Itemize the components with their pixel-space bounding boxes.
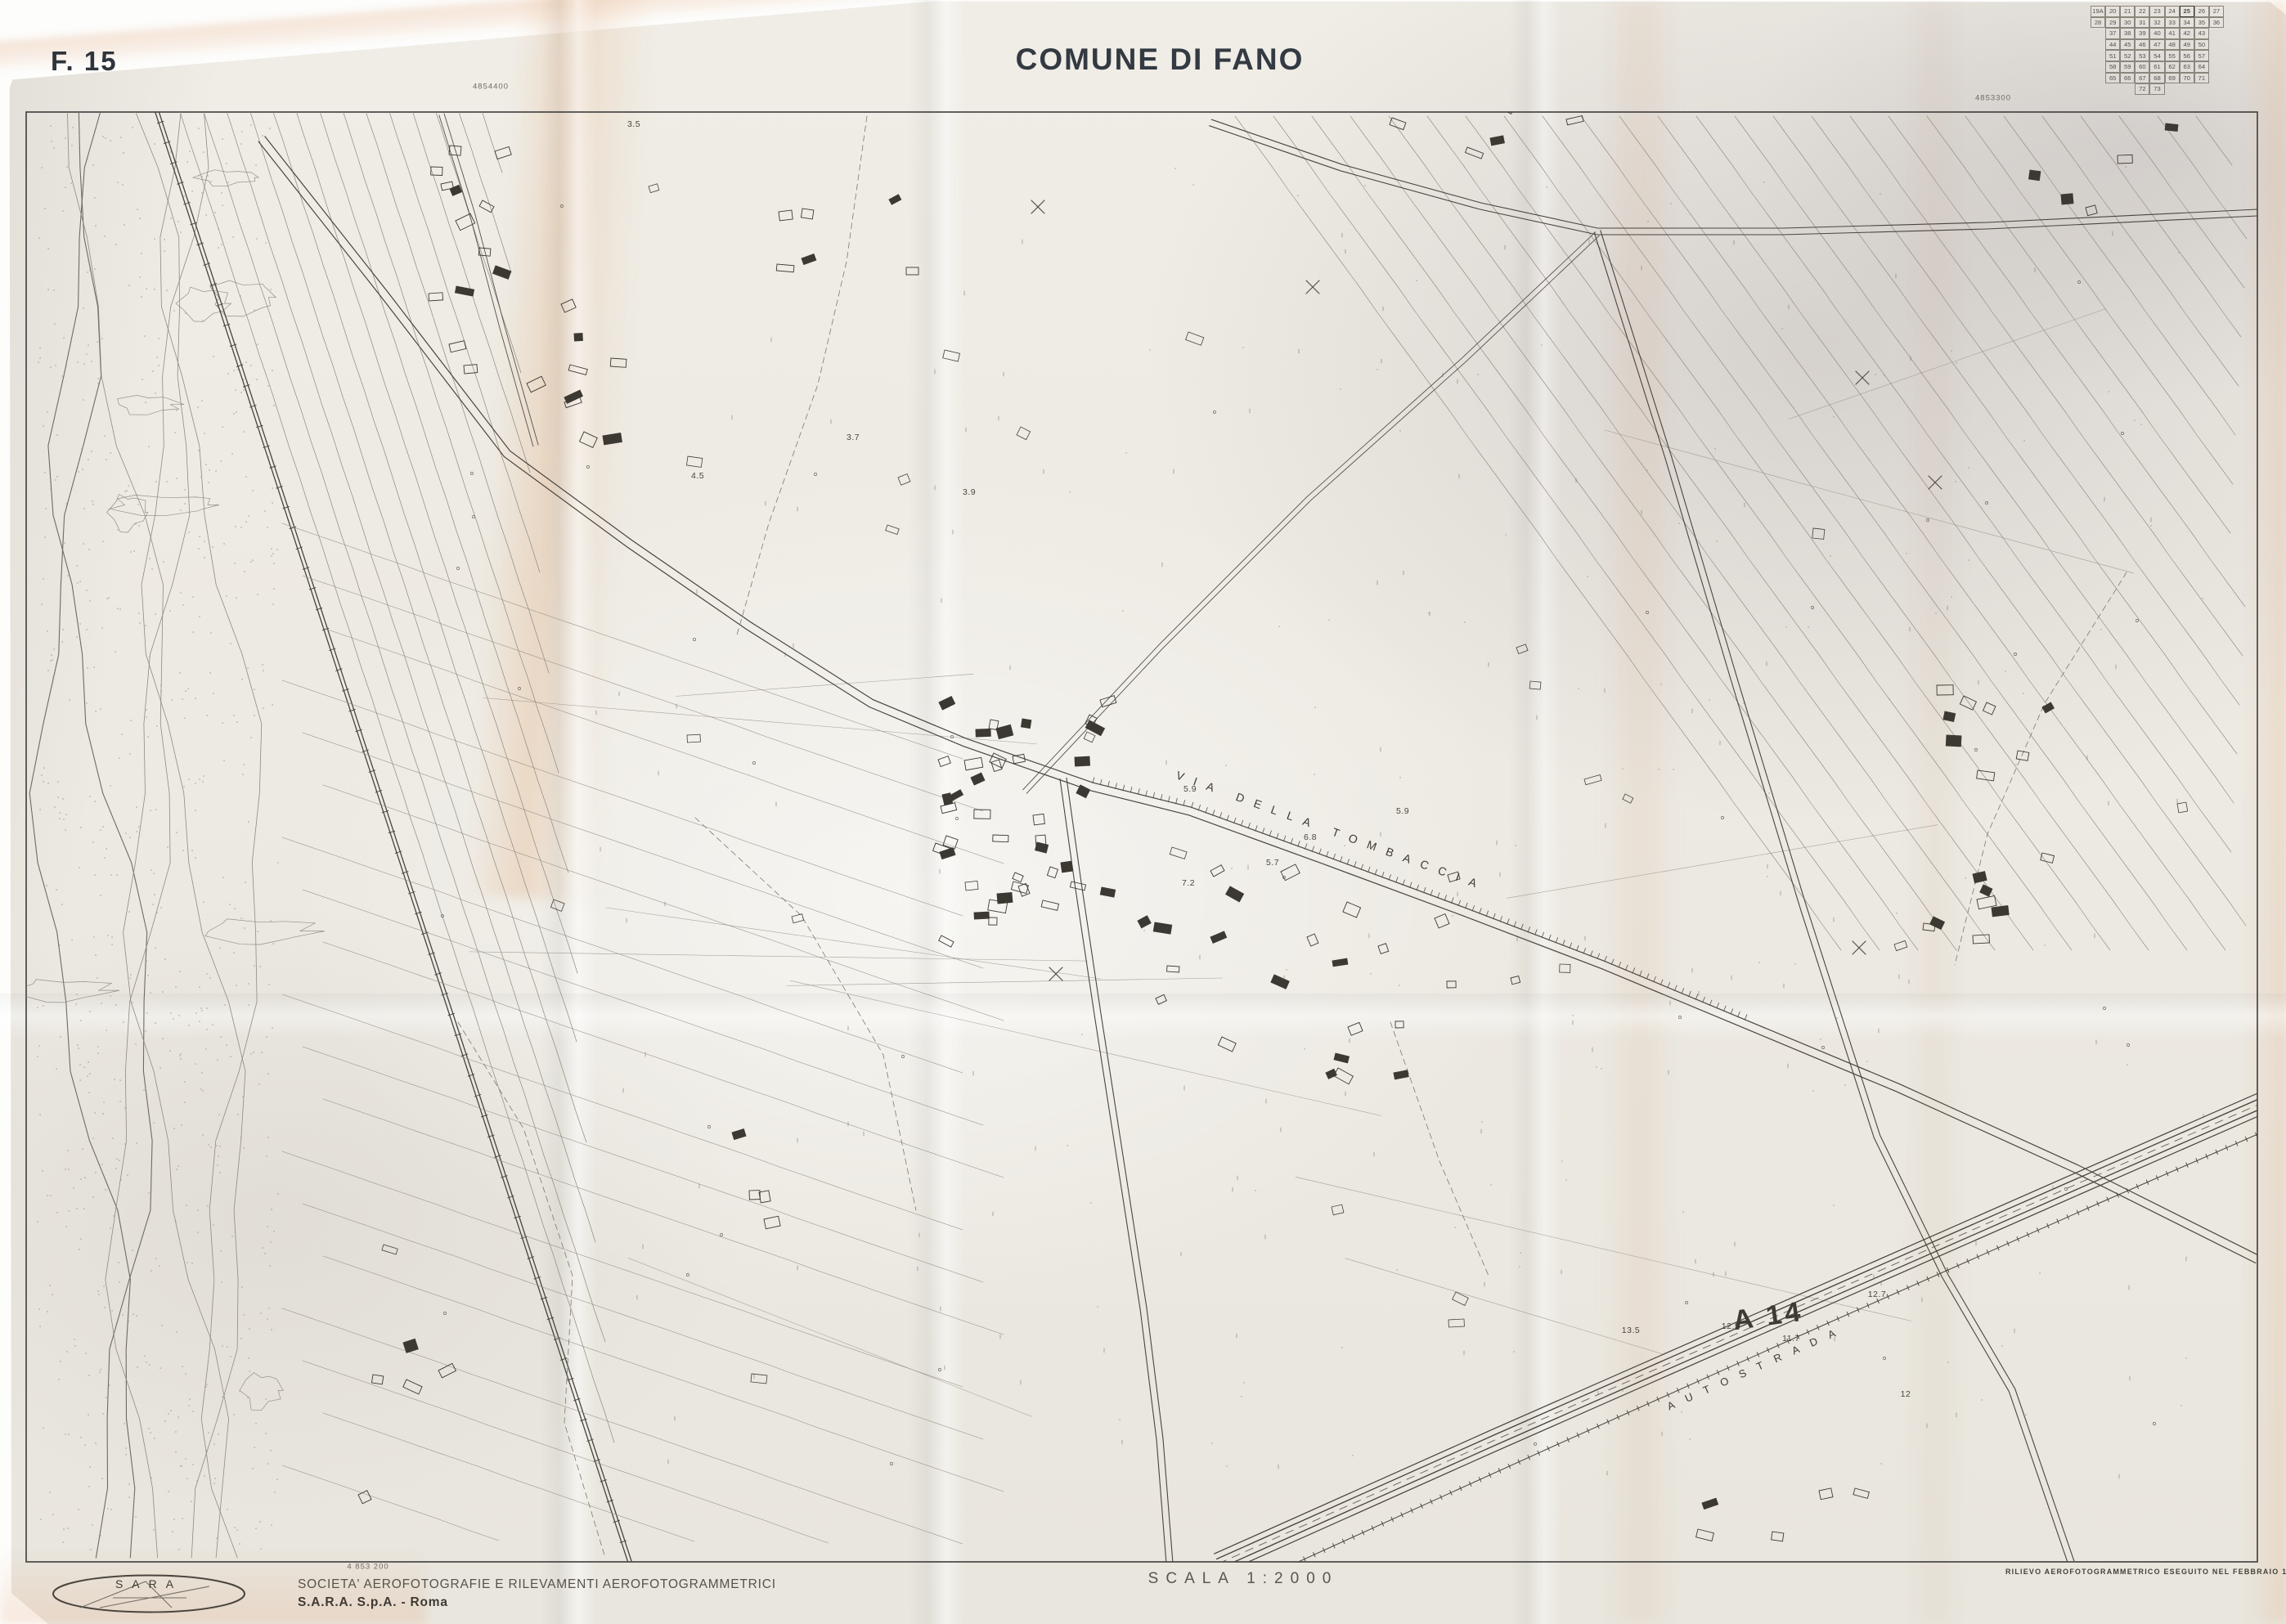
grid-cell-38: 38	[2120, 28, 2135, 39]
grid-empty-cell	[2209, 73, 2224, 84]
grid-empty-cell	[2165, 83, 2180, 95]
grid-cell-21: 21	[2120, 6, 2135, 17]
grid-cell-43: 43	[2194, 28, 2209, 39]
index-grid: 19A2021222324252627282930313233343536373…	[2091, 6, 2224, 95]
grid-cell-29: 29	[2105, 17, 2120, 29]
grid-cell-49: 49	[2180, 39, 2194, 51]
grid-cell-31: 31	[2135, 17, 2149, 29]
grid-cell-64: 64	[2194, 61, 2209, 73]
scanned-map-sheet: F. 15 COMUNE DI FANO 19A2021222324252627…	[0, 0, 2286, 1624]
grid-empty-cell	[2120, 83, 2135, 95]
company-line-2: S.A.R.A. S.p.A. - Roma	[298, 1595, 448, 1610]
grid-cell-30: 30	[2120, 17, 2135, 29]
grid-cell-56: 56	[2180, 50, 2194, 61]
grid-cell-71: 71	[2194, 73, 2209, 84]
grid-empty-cell	[2194, 83, 2209, 95]
grid-cell-36: 36	[2209, 17, 2224, 29]
grid-cell-25: 25	[2180, 6, 2194, 17]
grid-cell-61: 61	[2149, 61, 2164, 73]
grid-cell-22: 22	[2135, 6, 2149, 17]
grid-cell-59: 59	[2120, 61, 2135, 73]
grid-cell-72: 72	[2135, 83, 2149, 95]
grid-cell-51: 51	[2105, 50, 2120, 61]
grid-cell-55: 55	[2165, 50, 2180, 61]
grid-cell-53: 53	[2135, 50, 2149, 61]
grid-cell-37: 37	[2105, 28, 2120, 39]
grid-cell-50: 50	[2194, 39, 2209, 51]
grid-cell-28: 28	[2091, 17, 2105, 29]
grid-empty-cell	[2209, 61, 2224, 73]
sara-logo: SARA	[49, 1573, 249, 1614]
grid-empty-cell	[2091, 39, 2105, 51]
grid-cell-39: 39	[2135, 28, 2149, 39]
sheet-number: F. 15	[51, 46, 118, 77]
scale-label: SCALA 1:2000	[1071, 1570, 1415, 1588]
grid-cell-67: 67	[2135, 73, 2149, 84]
grid-empty-cell	[2209, 39, 2224, 51]
grid-cell-32: 32	[2149, 17, 2164, 29]
grid-cell-48: 48	[2165, 39, 2180, 51]
grid-cell-47: 47	[2149, 39, 2164, 51]
survey-note: RILIEVO AEROFOTOGRAMMETRICO ESEGUITO NEL…	[2005, 1568, 2286, 1577]
grid-cell-24: 24	[2165, 6, 2180, 17]
grid-cell-35: 35	[2194, 17, 2209, 29]
grid-cell-44: 44	[2105, 39, 2120, 51]
grid-cell-27: 27	[2209, 6, 2224, 17]
grid-cell-73: 73	[2149, 83, 2164, 95]
grid-cell-65: 65	[2105, 73, 2120, 84]
grid-empty-cell	[2209, 83, 2224, 95]
grid-empty-cell	[2180, 83, 2194, 95]
grid-empty-cell	[2105, 83, 2120, 95]
grid-empty-cell	[2209, 28, 2224, 39]
grid-cell-23: 23	[2149, 6, 2164, 17]
grid-cell-20: 20	[2105, 6, 2120, 17]
page-title: COMUNE DI FANO	[988, 43, 1332, 77]
grid-empty-cell	[2091, 61, 2105, 73]
grid-cell-33: 33	[2165, 17, 2180, 29]
grid-cell-34: 34	[2180, 17, 2194, 29]
grid-cell-45: 45	[2120, 39, 2135, 51]
grid-empty-cell	[2091, 50, 2105, 61]
grid-cell-58: 58	[2105, 61, 2120, 73]
grid-cell-54: 54	[2149, 50, 2164, 61]
grid-cell-66: 66	[2120, 73, 2135, 84]
logo-text: SARA	[115, 1577, 182, 1590]
grid-cell-57: 57	[2194, 50, 2209, 61]
grid-empty-cell	[2091, 83, 2105, 95]
grid-cell-60: 60	[2135, 61, 2149, 73]
grid-cell-40: 40	[2149, 28, 2164, 39]
grid-cell-63: 63	[2180, 61, 2194, 73]
grid-cell-69: 69	[2165, 73, 2180, 84]
grid-cell-19A: 19A	[2091, 6, 2105, 17]
grid-empty-cell	[2091, 73, 2105, 84]
map-drawing	[0, 0, 2286, 1624]
grid-cell-52: 52	[2120, 50, 2135, 61]
grid-cell-68: 68	[2149, 73, 2164, 84]
grid-cell-70: 70	[2180, 73, 2194, 84]
grid-cell-26: 26	[2194, 6, 2209, 17]
grid-cell-42: 42	[2180, 28, 2194, 39]
grid-empty-cell	[2209, 50, 2224, 61]
grid-cell-62: 62	[2165, 61, 2180, 73]
company-line-1: SOCIETA' AEROFOTOGRAFIE E RILEVAMENTI AE…	[298, 1577, 776, 1592]
grid-cell-46: 46	[2135, 39, 2149, 51]
grid-empty-cell	[2091, 28, 2105, 39]
grid-cell-41: 41	[2165, 28, 2180, 39]
